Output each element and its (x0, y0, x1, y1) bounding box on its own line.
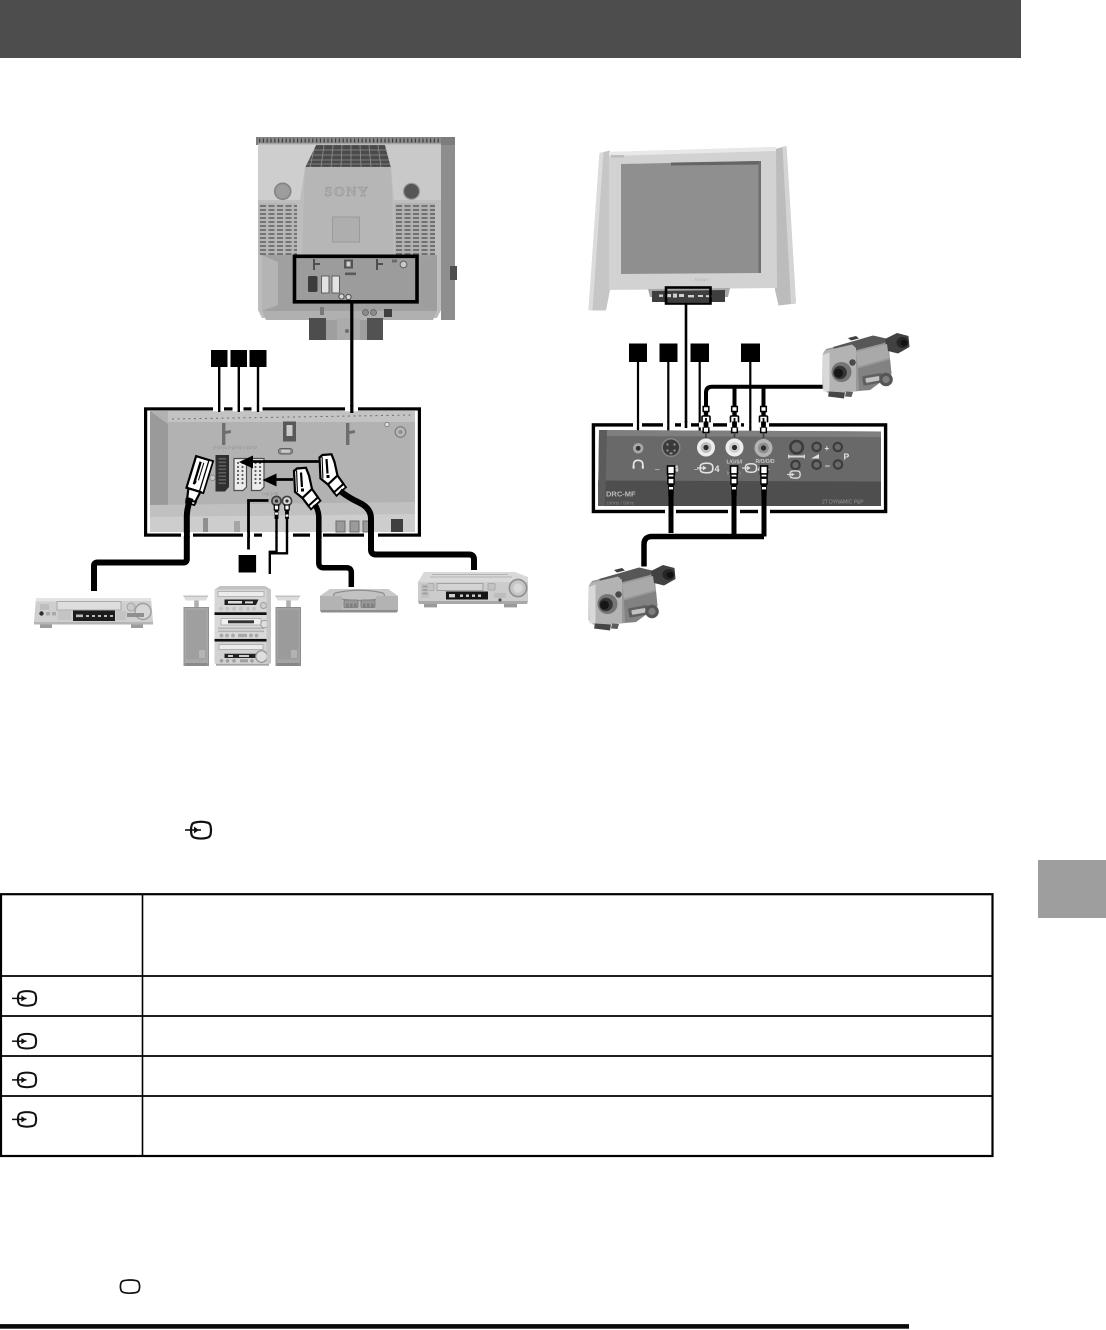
svg-text:2T DYNAMIC P&P: 2T DYNAMIC P&P (822, 500, 864, 506)
svg-text:–: – (655, 465, 660, 474)
svg-text:–: – (825, 461, 830, 471)
svg-text:R/O/O/D: R/O/O/D (756, 459, 776, 465)
svg-text:100Hz / 50Hz: 100Hz / 50Hz (606, 501, 635, 506)
svg-text:4: 4 (715, 464, 720, 474)
svg-text:L/G/S/I: L/G/S/I (727, 460, 743, 466)
svg-text:+: + (825, 444, 830, 453)
svg-text:(+)1/-)1 (+)2/-)2 (+)3/-)3: (+)1/-)1 (+)2/-)2 (+)3/-)3 (213, 445, 258, 450)
svg-text:DRC-MF: DRC-MF (606, 490, 636, 499)
svg-text:–: – (694, 465, 699, 474)
svg-text:P: P (844, 452, 850, 462)
svg-text:SONY: SONY (325, 185, 370, 200)
svg-text:SONY: SONY (695, 277, 710, 282)
